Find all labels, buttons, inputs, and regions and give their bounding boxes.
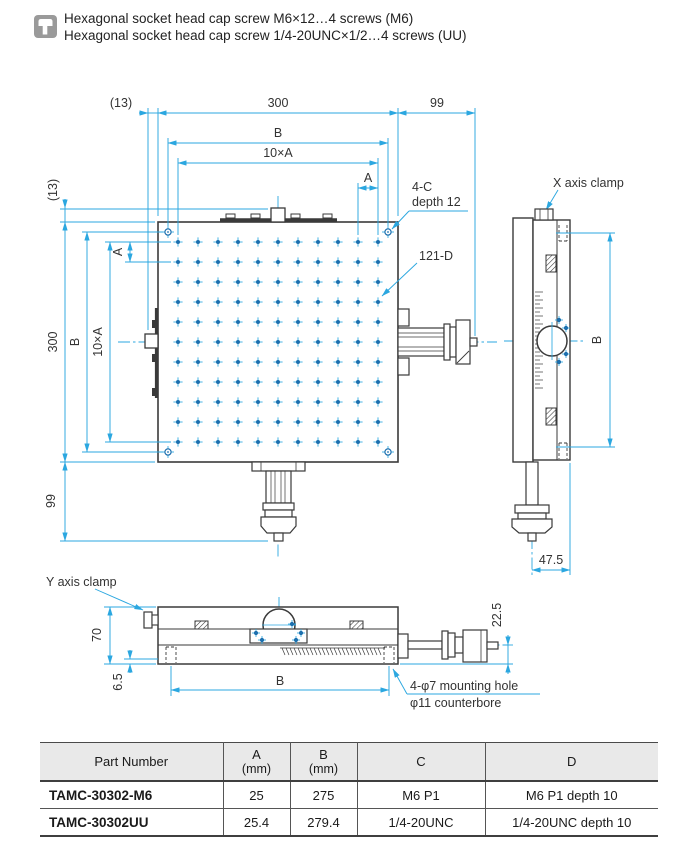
- front-dim-6-5: 6.5: [111, 673, 125, 690]
- dim-10xA-top: 10×A: [263, 146, 293, 160]
- dim-13-top: (13): [110, 96, 132, 110]
- col-b: B(mm): [290, 743, 357, 782]
- dim-10xA-left: 10×A: [91, 327, 105, 357]
- front-screw-section-left: [195, 621, 208, 629]
- label-4c-depth: depth 12: [412, 195, 461, 209]
- label-mount-2: φ11 counterbore: [410, 696, 501, 710]
- table-row: TAMC-30302-M6 25 275 M6 P1 M6 P1 depth 1…: [40, 781, 658, 809]
- side-bottom-micrometer: [512, 462, 552, 541]
- dim-B-top: B: [274, 126, 282, 140]
- side-base-slab: [513, 218, 533, 462]
- dim-A-top: A: [364, 171, 373, 185]
- top-knob: [271, 208, 285, 222]
- side-view: B 47.5: [504, 209, 615, 575]
- front-screw-section-right: [350, 621, 363, 629]
- dim-99-top: 99: [430, 96, 444, 110]
- dim-13-left: (13): [46, 179, 60, 201]
- dim-300-left: 300: [46, 332, 60, 353]
- cell-d: M6 P1 depth 10: [485, 781, 658, 809]
- col-part-number: Part Number: [40, 743, 223, 782]
- dim-300-top: 300: [268, 96, 289, 110]
- x-micrometer: [398, 309, 477, 375]
- col-c: C: [357, 743, 485, 782]
- spec-table: Part Number A(mm) B(mm) C D TAMC-30302-M…: [40, 742, 658, 837]
- cell-a: 25: [223, 781, 290, 809]
- spec-header-row: Part Number A(mm) B(mm) C D: [40, 743, 658, 782]
- dim-99-left: 99: [44, 494, 58, 508]
- cell-b: 279.4: [290, 809, 357, 837]
- left-knob: [145, 334, 158, 348]
- y-clamp-knob: [144, 612, 152, 628]
- front-dim-70: 70: [90, 628, 104, 642]
- clamp-screw-section-top: [546, 255, 556, 272]
- side-dim-47-5: 47.5: [539, 553, 563, 567]
- side-dim-B: B: [590, 336, 604, 344]
- leader-x-clamp: [546, 190, 558, 210]
- cell-b: 275: [290, 781, 357, 809]
- catalog-page: Hexagonal socket head cap screw M6×12…4 …: [0, 0, 700, 850]
- col-d: D: [485, 743, 658, 782]
- dim-B-left: B: [68, 338, 82, 346]
- front-dim-22-5: 22.5: [490, 603, 504, 627]
- col-a: A(mm): [223, 743, 290, 782]
- cell-part: TAMC-30302UU: [40, 809, 223, 837]
- y-micrometer: [252, 462, 305, 541]
- table-row: TAMC-30302UU 25.4 279.4 1/4-20UNC 1/4-20…: [40, 809, 658, 837]
- cell-part: TAMC-30302-M6: [40, 781, 223, 809]
- front-bracket: [250, 629, 307, 643]
- clamp-screw-section-bottom: [546, 408, 556, 425]
- cell-d: 1/4-20UNC depth 10: [485, 809, 658, 837]
- front-view: 70 6.5 22.5 B Y axis clamp 4-φ7 mounting…: [46, 575, 540, 710]
- front-dim-B: B: [276, 674, 284, 688]
- technical-drawing: (13) 300 99 B 10×A A (13) 300 B 10×A A 9…: [0, 0, 700, 740]
- cell-c: M6 P1: [357, 781, 485, 809]
- label-y-clamp: Y axis clamp: [46, 575, 117, 589]
- x-clamp-knob: [535, 209, 553, 220]
- label-4c: 4-C: [412, 180, 432, 194]
- front-micrometer: [398, 630, 498, 662]
- cell-c: 1/4-20UNC: [357, 809, 485, 837]
- label-mount-1: 4-φ7 mounting hole: [410, 679, 518, 693]
- leader-4c: [392, 211, 468, 229]
- label-121d: 121-D: [419, 249, 453, 263]
- label-x-clamp: X axis clamp: [553, 176, 624, 190]
- dim-A-left: A: [111, 247, 125, 256]
- cell-a: 25.4: [223, 809, 290, 837]
